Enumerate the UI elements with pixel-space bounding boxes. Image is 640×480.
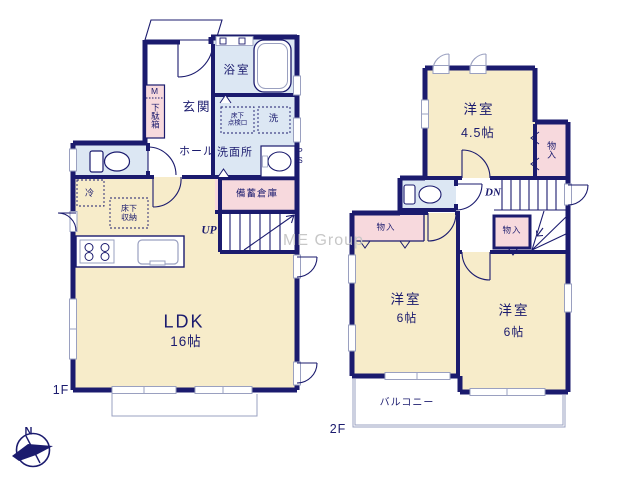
ldk-size-label: 16帖 [170,334,202,350]
balcony-label: バルコニー [380,397,435,409]
refrigerator-label: 冷 [85,188,95,198]
closet-label-stairs: 物入 [502,226,521,236]
shoe-cabinet-mark-label: M [151,87,158,97]
bathtub-icon [254,40,291,92]
room-label-stock-storage: 備蓄倉庫 [236,190,278,201]
closet-label-left: 物入 [376,223,395,233]
room-label-hall: ホール [179,146,215,159]
toilet2f-door-arc [456,184,482,210]
compass-icon [12,434,53,467]
floor2-label: 2F [330,422,347,436]
room-label-45: 洋室 [464,102,495,118]
underfloor-storage-label: 床下 収納 [121,204,137,222]
room-label-bathroom: 浴室 [224,64,251,77]
room-45-size-label: 4.5帖 [461,126,495,140]
washer-label: 洗 [269,115,280,126]
floor1-label: 1F [53,383,70,397]
compass-north-label: N [25,426,34,439]
floor1-plan [58,20,317,416]
sink-icon [138,240,178,265]
toilet-icon-2f [404,185,441,204]
room-label-ldk: LDK [163,312,204,333]
floorplan-canvas: ME Group 1F 玄関 M 下駄箱 浴室 洗面所 ホール 洗 床下 点検口… [0,0,640,480]
room-label-shoe-cabinet: 下駄箱 [150,103,160,129]
stove-icon [80,240,114,263]
room-label-washroom: 洗面所 [217,147,253,160]
room-label-entrance: 玄関 [182,100,211,114]
room-label-6-right: 洋室 [499,303,530,319]
underfloor-hatch-label: 床下 点検口 [228,113,248,128]
closet-label-top-right: 物入 [546,141,556,159]
stairs-up-label: UP [201,224,216,237]
washbasin-icon [261,146,295,177]
room-6-left-size-label: 6帖 [397,312,418,326]
stairs-down-label: DN [485,187,501,200]
room-label-6-left: 洋室 [391,292,422,308]
watermark: ME Group [283,232,364,250]
pipe-space-label: PS [295,147,304,165]
kitchen-counter [76,236,184,267]
toilet-icon-1f [90,151,130,172]
terrace-outline [112,394,257,416]
bath-counter-icon [216,37,253,46]
room-6-right-size-label: 6帖 [504,326,525,340]
